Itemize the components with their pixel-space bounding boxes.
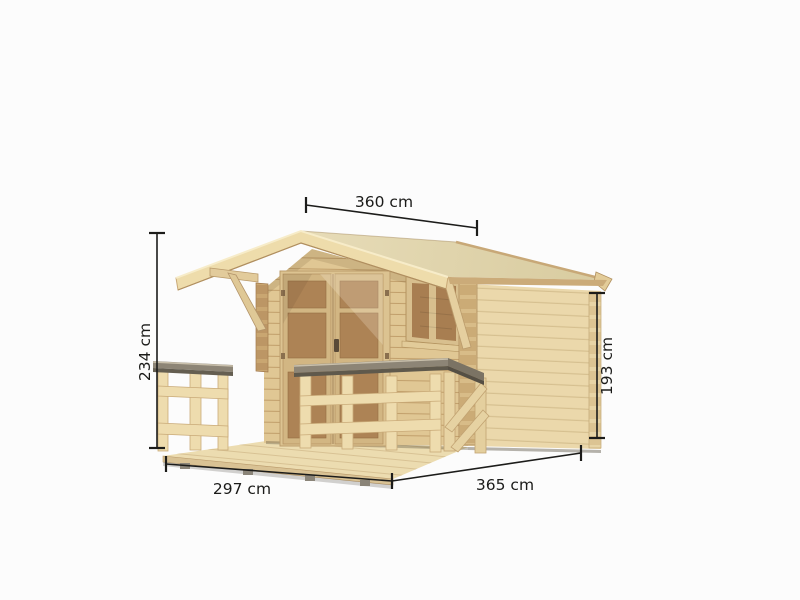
- double-door: [280, 271, 390, 446]
- label-terrace-depth: 297 cm: [213, 480, 271, 498]
- label-wall-height: 193 cm: [598, 337, 616, 395]
- door-hinge: [385, 353, 389, 359]
- side-wall: [468, 284, 601, 453]
- cabin-illustration: [153, 231, 612, 489]
- door-handle: [334, 339, 339, 352]
- label-total-height: 234 cm: [136, 323, 154, 381]
- cabin-diagram: 360 cm 234 cm 193 cm 297 cm 365 cm: [0, 0, 800, 600]
- product-dimension-image: 360 cm 234 cm 193 cm 297 cm 365 cm: [0, 0, 800, 600]
- label-building-width: 365 cm: [476, 476, 534, 494]
- label-roof-width: 360 cm: [355, 193, 413, 211]
- railing-left-panel: [153, 361, 233, 451]
- door-hinge: [281, 353, 285, 359]
- door-hinge: [385, 290, 389, 296]
